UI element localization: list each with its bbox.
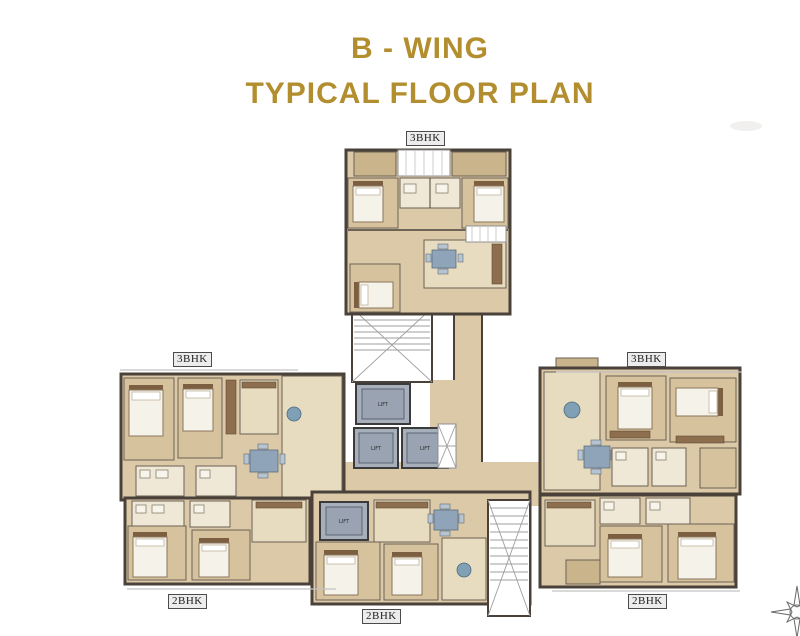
bed (324, 550, 358, 595)
compass-rose-icon (771, 586, 800, 636)
bathrooms (132, 501, 230, 527)
living-room (282, 376, 342, 498)
bed (392, 552, 422, 595)
wardrobe (610, 431, 650, 438)
page: B - WING TYPICAL FLOOR PLAN (0, 0, 800, 636)
lift-4: LIFT (320, 502, 368, 540)
wardrobe (226, 380, 236, 434)
lift-2-label: LIFT (371, 446, 382, 452)
kitchen (374, 500, 430, 542)
bed (608, 534, 642, 577)
unit-right-3bhk (540, 358, 740, 494)
wash-area (287, 407, 301, 421)
utility-deck (466, 226, 506, 242)
unit-type-label-bottom-center: 2BHK (362, 609, 401, 624)
balcony (354, 152, 396, 176)
unit-type-label-top: 3BHK (406, 131, 445, 146)
bed (676, 388, 723, 416)
lift-1-label: LIFT (378, 402, 389, 408)
bed (129, 385, 163, 436)
dress-room (700, 448, 736, 488)
bed (133, 532, 167, 577)
lift-4-label: LIFT (339, 519, 350, 525)
bed (354, 282, 393, 308)
wash-area (564, 402, 580, 418)
dining-table (434, 510, 458, 530)
lift-1: LIFT (356, 384, 410, 424)
kitchen (424, 240, 506, 288)
bed (199, 538, 229, 577)
staircase-secondary (488, 500, 530, 616)
wardrobe (676, 436, 724, 443)
unit-type-label-right: 3BHK (627, 352, 666, 367)
lift-3-label: LIFT (420, 446, 431, 452)
kitchen (545, 500, 595, 546)
kitchen (252, 500, 306, 542)
lift-2: LIFT (354, 428, 398, 468)
bathrooms (400, 178, 460, 208)
wash-area (457, 563, 471, 577)
duct-shaft (438, 424, 456, 468)
deck (398, 150, 450, 176)
dining-table (250, 450, 278, 472)
watermark-smudge (730, 121, 762, 131)
unit-bottom-right-2bhk (540, 495, 736, 587)
unit-top-3bhk (346, 150, 510, 314)
unit-type-label-left: 3BHK (173, 352, 212, 367)
unit-type-label-bottom-right: 2BHK (628, 594, 667, 609)
unit-bottom-left-2bhk (125, 498, 310, 584)
bed (678, 532, 716, 579)
staircase-main (352, 308, 432, 382)
unit-type-label-bottom-left: 2BHK (168, 594, 207, 609)
unit-left-3bhk (121, 374, 344, 500)
dining-table (432, 250, 456, 268)
bed (183, 384, 213, 431)
dining-table (584, 446, 610, 468)
floor-plan: LIFT LIFT LIFT (0, 0, 800, 636)
bed (474, 181, 504, 222)
balcony (452, 152, 506, 176)
bed (618, 382, 652, 429)
bed (353, 181, 383, 222)
balcony (566, 560, 600, 584)
kitchen (240, 380, 278, 434)
unit-bottom-center-2bhk: LIFT (312, 492, 530, 616)
